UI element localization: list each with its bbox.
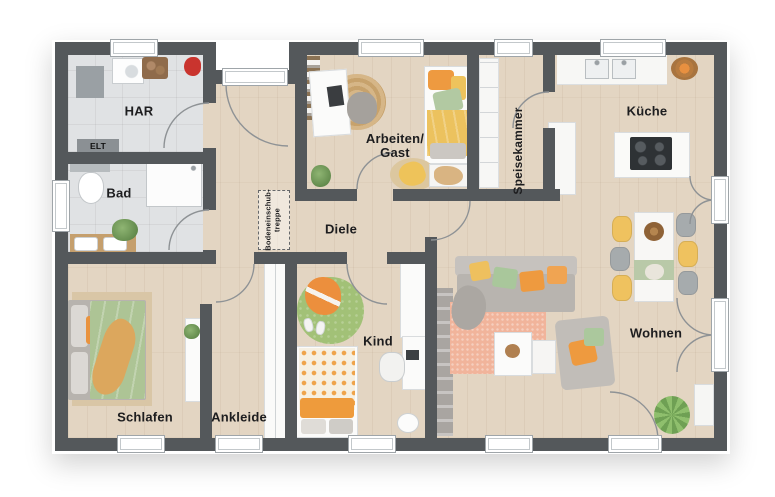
dining-chair (612, 275, 632, 301)
dining-chair (678, 271, 698, 295)
arbeiten-line2: Gast (366, 146, 424, 160)
window-har (110, 39, 158, 57)
room-label-arbeiten-gast: Arbeiten/ Gast (366, 132, 424, 160)
beanbag (305, 277, 341, 315)
window-schlafen (117, 435, 165, 453)
toilet (78, 172, 104, 204)
coffee-table-decor (505, 344, 520, 358)
wardrobe (264, 260, 285, 438)
room-label-wohnen: Wohnen (630, 326, 682, 341)
room-label-speisekammer: Speisekammer (511, 107, 525, 194)
attic-stairs-label: Bodeneinschub- treppe (265, 189, 282, 251)
room-label-ankleide: Ankleide (211, 410, 267, 425)
sideboard (694, 384, 714, 426)
french-door-wohnen (711, 298, 729, 372)
bench-basket (434, 166, 463, 185)
office-laptop (327, 85, 345, 107)
table-bowl (644, 222, 664, 241)
room-label-bad: Bad (106, 186, 131, 201)
pantry-shelf (479, 58, 499, 188)
window-wohnen (485, 435, 533, 453)
room-label-kueche: Küche (627, 104, 668, 119)
kid-blanket (300, 398, 354, 418)
fruit-bowl (671, 57, 698, 80)
sink-left (74, 237, 98, 251)
floor-plan: HAR ELT Bad Schlafen Ankleide Kind Diele… (0, 0, 775, 497)
office-chair (347, 92, 377, 124)
sofa-pillow-green (492, 266, 519, 289)
bed-pillow (71, 352, 88, 394)
red-bucket (184, 57, 201, 76)
kid-pillow (329, 419, 353, 434)
sofa-pillow-yellow (469, 260, 492, 281)
window-kueche (600, 39, 666, 57)
palm-plant (654, 396, 690, 434)
cooktop (630, 137, 672, 170)
shower (146, 160, 202, 207)
dining-chair (676, 213, 696, 237)
room-label-schlafen: Schlafen (117, 410, 173, 425)
kid-pillow (301, 419, 326, 434)
kind-chair (379, 352, 405, 382)
room-label-kind: Kind (363, 334, 393, 349)
sofa-pillow-orange (547, 266, 567, 284)
guest-fold (430, 143, 466, 159)
washing-machine (112, 58, 144, 84)
entrance-door (222, 68, 288, 86)
window-arbeiten (358, 39, 424, 57)
attic-line2: treppe (273, 189, 282, 251)
armchair-pillow-green (584, 328, 604, 346)
laundry-basket (142, 57, 168, 79)
room-label-elt: ELT (90, 141, 106, 151)
window-kind (348, 435, 396, 453)
dining-chair (612, 216, 632, 242)
window-bad (52, 180, 70, 232)
kind-laptop (406, 350, 419, 360)
room-label-diele: Diele (325, 222, 357, 237)
entrance-recess (216, 42, 289, 70)
side-table (532, 340, 556, 374)
window-ankleide (215, 435, 263, 453)
toilet-tank (70, 164, 110, 172)
arbeiten-line1: Arbeiten/ (366, 132, 424, 146)
room-label-har: HAR (125, 104, 154, 119)
terrace-door-south (608, 435, 662, 453)
sofa-pillow-orange (519, 270, 545, 292)
kitchen-sink (612, 59, 636, 79)
french-door-dining (711, 176, 729, 224)
dining-chair (610, 247, 630, 271)
window-speisekammer (494, 39, 533, 57)
kind-shelf (400, 262, 428, 338)
dining-chair (678, 241, 698, 267)
har-cabinet (76, 66, 104, 98)
kind-stool (397, 413, 419, 433)
kitchen-sink (585, 59, 609, 79)
